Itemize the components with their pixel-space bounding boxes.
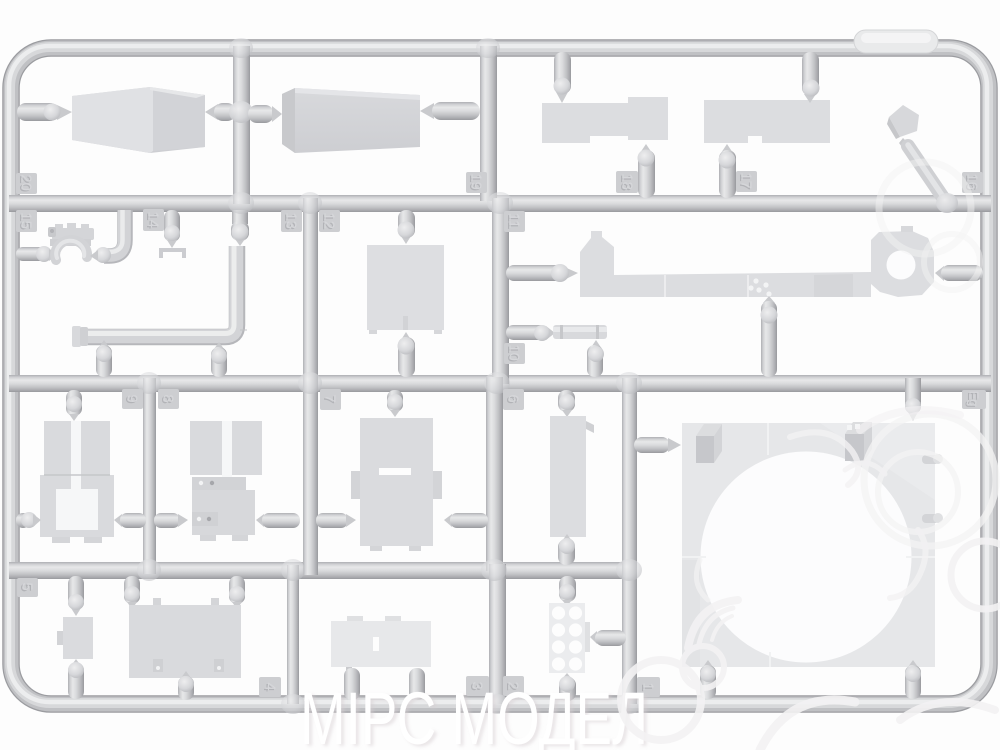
svg-text:4: 4 (261, 682, 278, 690)
svg-text:5: 5 (18, 582, 35, 590)
svg-text:6: 6 (504, 394, 521, 402)
svg-text:17: 17 (737, 172, 754, 189)
svg-text:18: 18 (618, 173, 635, 190)
svg-text:10: 10 (505, 344, 522, 361)
svg-text:14: 14 (144, 211, 161, 228)
svg-text:8: 8 (159, 394, 176, 402)
svg-text:19: 19 (467, 173, 484, 190)
svg-text:11: 11 (505, 213, 522, 229)
svg-text:9: 9 (123, 394, 140, 402)
svg-text:20: 20 (17, 174, 34, 191)
svg-text:7: 7 (321, 394, 338, 402)
svg-text:15: 15 (17, 212, 34, 229)
svg-text:Eg: Eg (966, 391, 981, 407)
svg-text:12: 12 (320, 212, 337, 229)
svg-text:МІРС МОДЕЛ: МІРС МОДЕЛ (300, 677, 648, 750)
svg-text:13: 13 (282, 212, 299, 229)
